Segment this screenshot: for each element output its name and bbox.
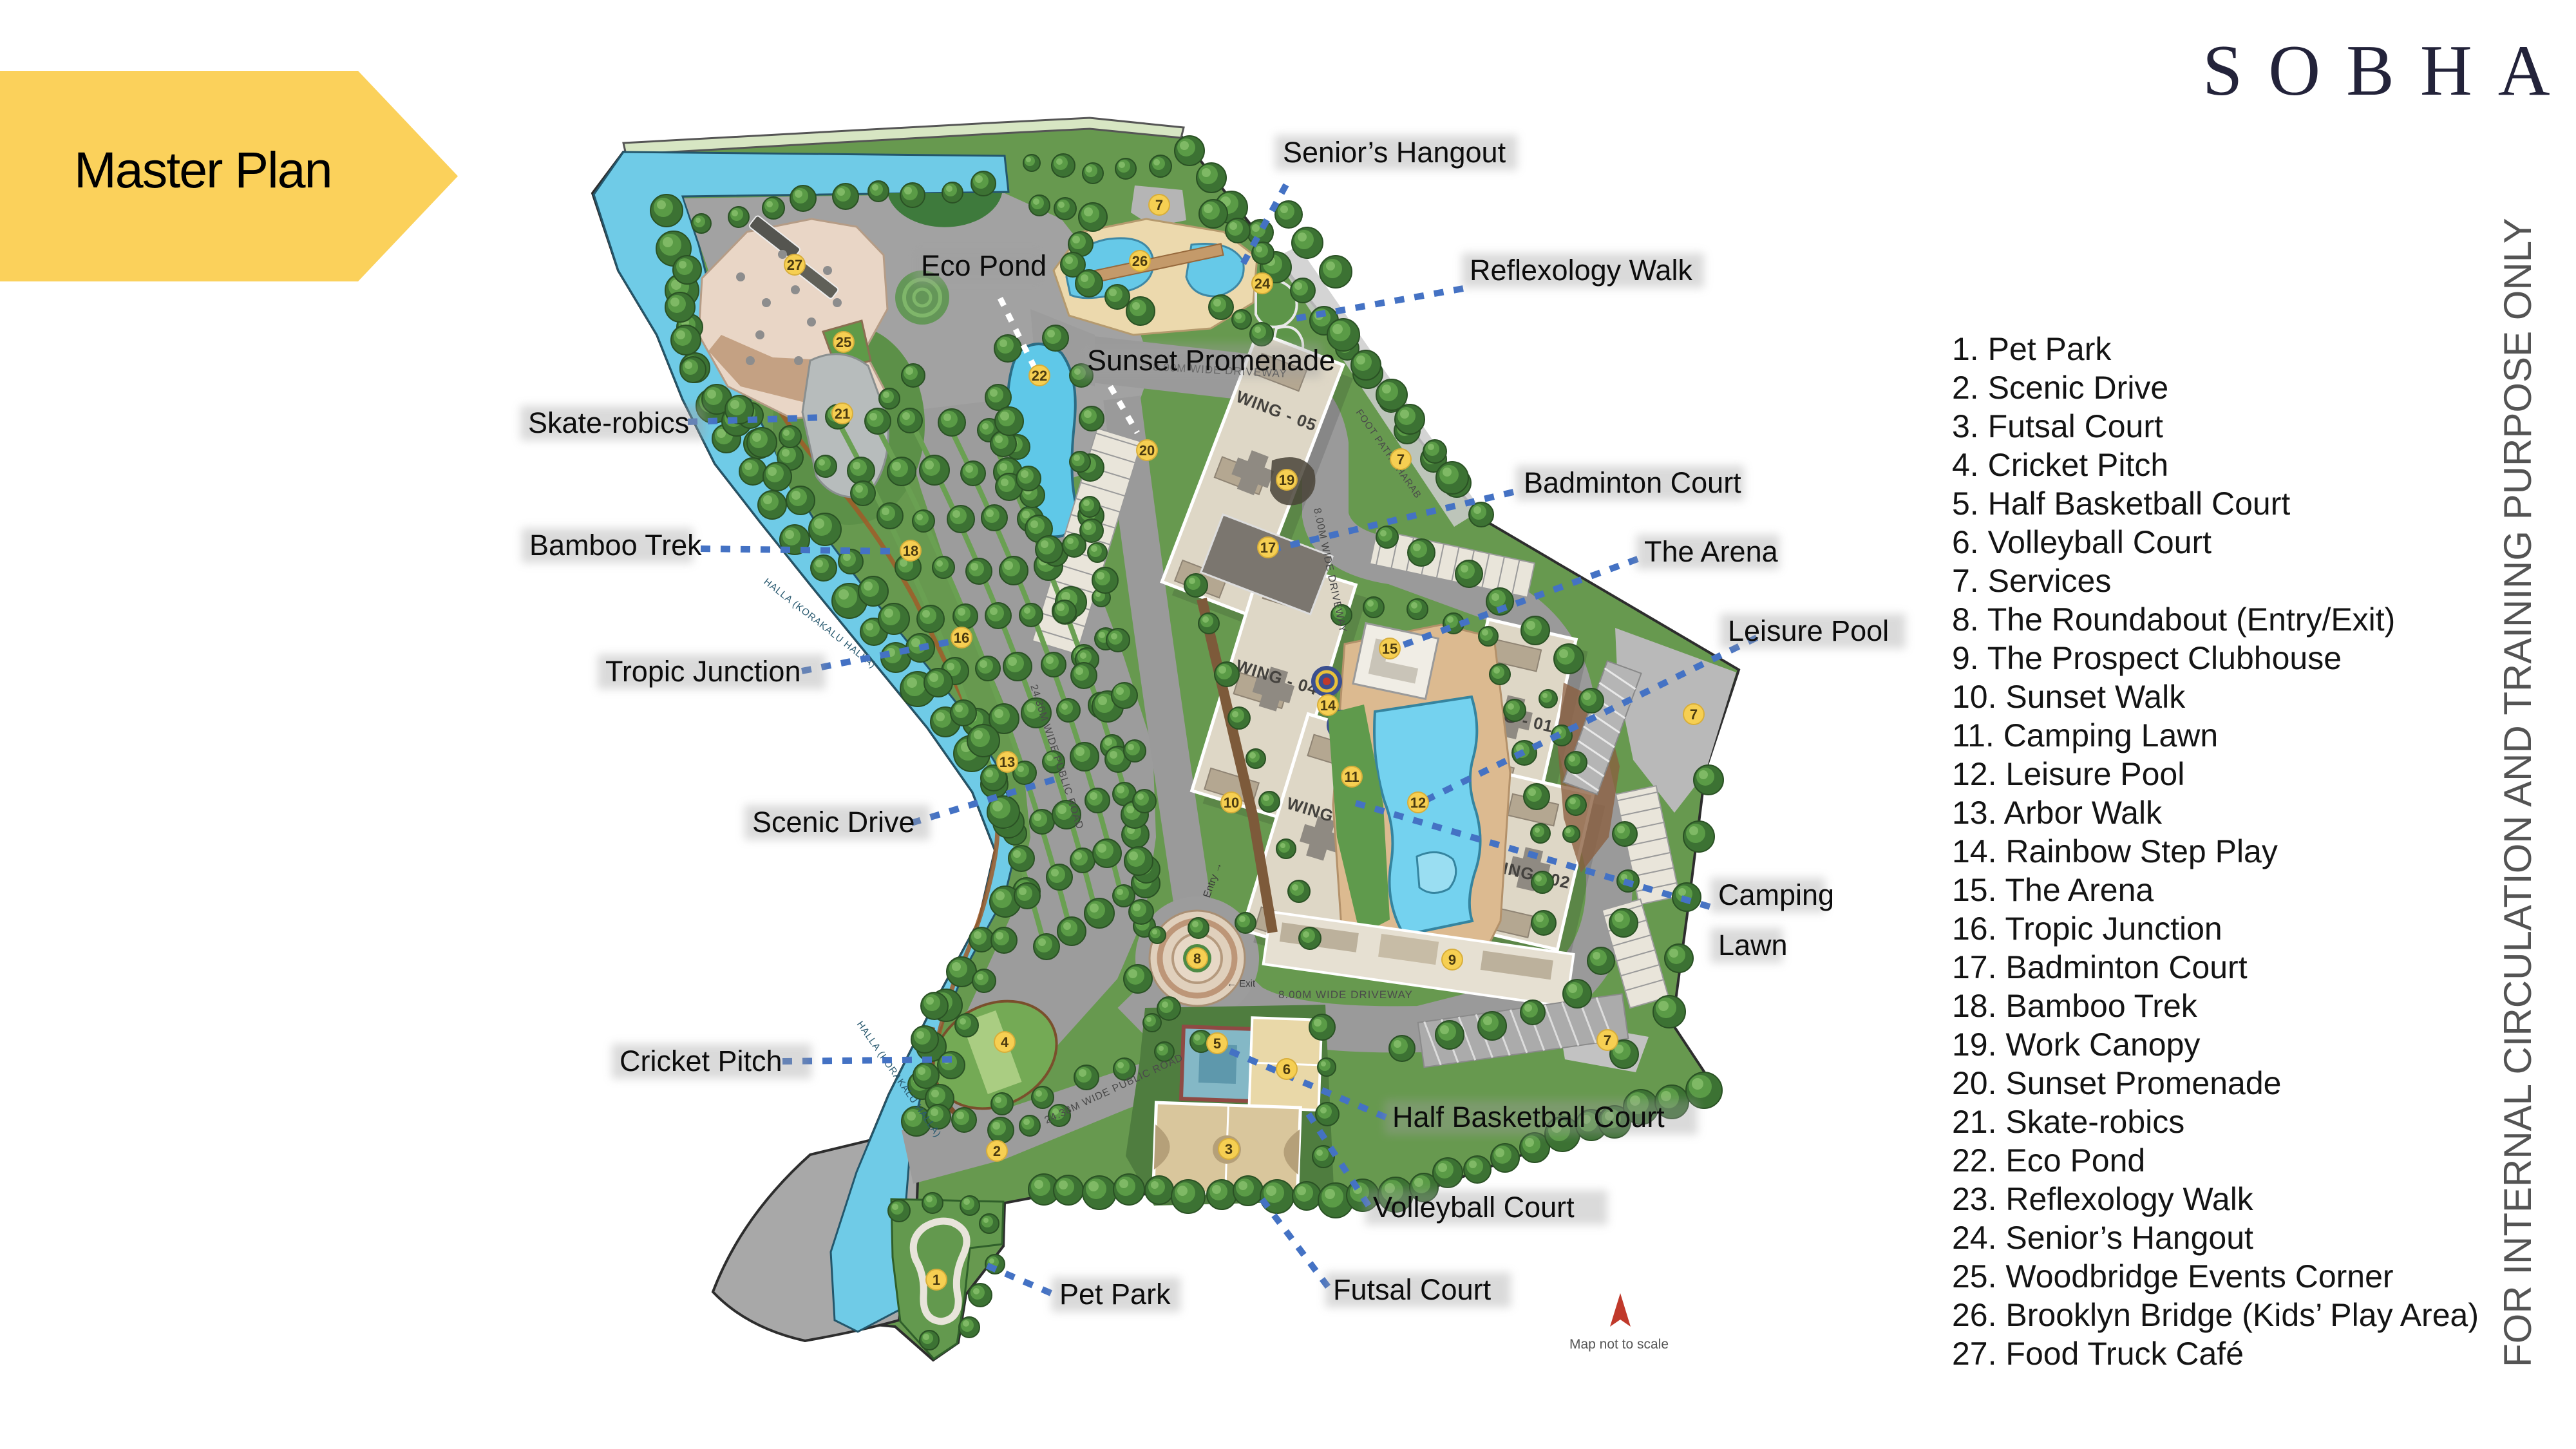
svg-text:10: 10 xyxy=(1224,795,1239,811)
svg-text:3: 3 xyxy=(1225,1141,1233,1157)
svg-text:19: 19 xyxy=(1279,472,1294,488)
svg-text:7: 7 xyxy=(1604,1032,1611,1048)
svg-text:25: 25 xyxy=(836,334,851,350)
svg-text:8: 8 xyxy=(1193,951,1201,967)
svg-text:Sunset Promenade: Sunset Promenade xyxy=(1087,344,1335,377)
svg-text:17: 17 xyxy=(1260,540,1276,556)
svg-text:8.00M WIDE DRIVEWAY: 8.00M WIDE DRIVEWAY xyxy=(1278,989,1413,1001)
svg-text:Camping: Camping xyxy=(1718,878,1834,911)
svg-text:7: 7 xyxy=(1690,706,1698,723)
svg-text:22: 22 xyxy=(1032,368,1047,384)
svg-text:Leisure Pool: Leisure Pool xyxy=(1728,614,1889,647)
svg-text:Pet Park: Pet Park xyxy=(1059,1278,1171,1311)
svg-text:Scenic Drive: Scenic Drive xyxy=(752,806,915,838)
svg-text:5: 5 xyxy=(1213,1036,1221,1052)
svg-text:12: 12 xyxy=(1410,795,1426,811)
svg-text:Lawn: Lawn xyxy=(1718,929,1788,961)
svg-text:4: 4 xyxy=(1001,1034,1009,1050)
svg-text:← Exit: ← Exit xyxy=(1227,978,1256,989)
svg-text:7: 7 xyxy=(1155,197,1163,213)
svg-text:Eco Pond: Eco Pond xyxy=(921,249,1046,282)
svg-text:26: 26 xyxy=(1132,253,1148,269)
svg-text:Badminton Court: Badminton Court xyxy=(1524,466,1741,499)
svg-text:Senior’s Hangout: Senior’s Hangout xyxy=(1283,136,1506,169)
svg-text:The Arena: The Arena xyxy=(1644,535,1779,568)
svg-text:Tropic Junction: Tropic Junction xyxy=(605,655,800,688)
svg-text:14: 14 xyxy=(1320,697,1336,714)
svg-text:Map not to scale: Map not to scale xyxy=(1569,1337,1669,1352)
svg-text:21: 21 xyxy=(835,406,850,422)
svg-text:Half Basketball Court: Half Basketball Court xyxy=(1392,1101,1665,1133)
svg-text:11: 11 xyxy=(1344,769,1359,785)
svg-text:Skate-robics: Skate-robics xyxy=(528,406,689,439)
svg-text:Volleyball Court: Volleyball Court xyxy=(1373,1191,1575,1224)
svg-text:9: 9 xyxy=(1448,952,1456,968)
svg-text:20: 20 xyxy=(1139,442,1155,459)
svg-text:2: 2 xyxy=(993,1143,1001,1159)
svg-text:27: 27 xyxy=(787,257,802,273)
svg-text:15: 15 xyxy=(1382,641,1397,657)
svg-text:Reflexology Walk: Reflexology Walk xyxy=(1470,254,1692,287)
svg-text:7: 7 xyxy=(1397,451,1405,468)
svg-text:Cricket Pitch: Cricket Pitch xyxy=(620,1045,782,1077)
svg-text:24: 24 xyxy=(1255,276,1271,292)
svg-text:Bamboo Trek: Bamboo Trek xyxy=(529,529,702,562)
svg-text:18: 18 xyxy=(903,543,918,559)
svg-text:13: 13 xyxy=(999,754,1015,770)
svg-text:Futsal Court: Futsal Court xyxy=(1333,1273,1492,1306)
svg-text:1: 1 xyxy=(933,1272,940,1288)
svg-text:6: 6 xyxy=(1283,1061,1291,1077)
svg-text:16: 16 xyxy=(954,630,969,646)
